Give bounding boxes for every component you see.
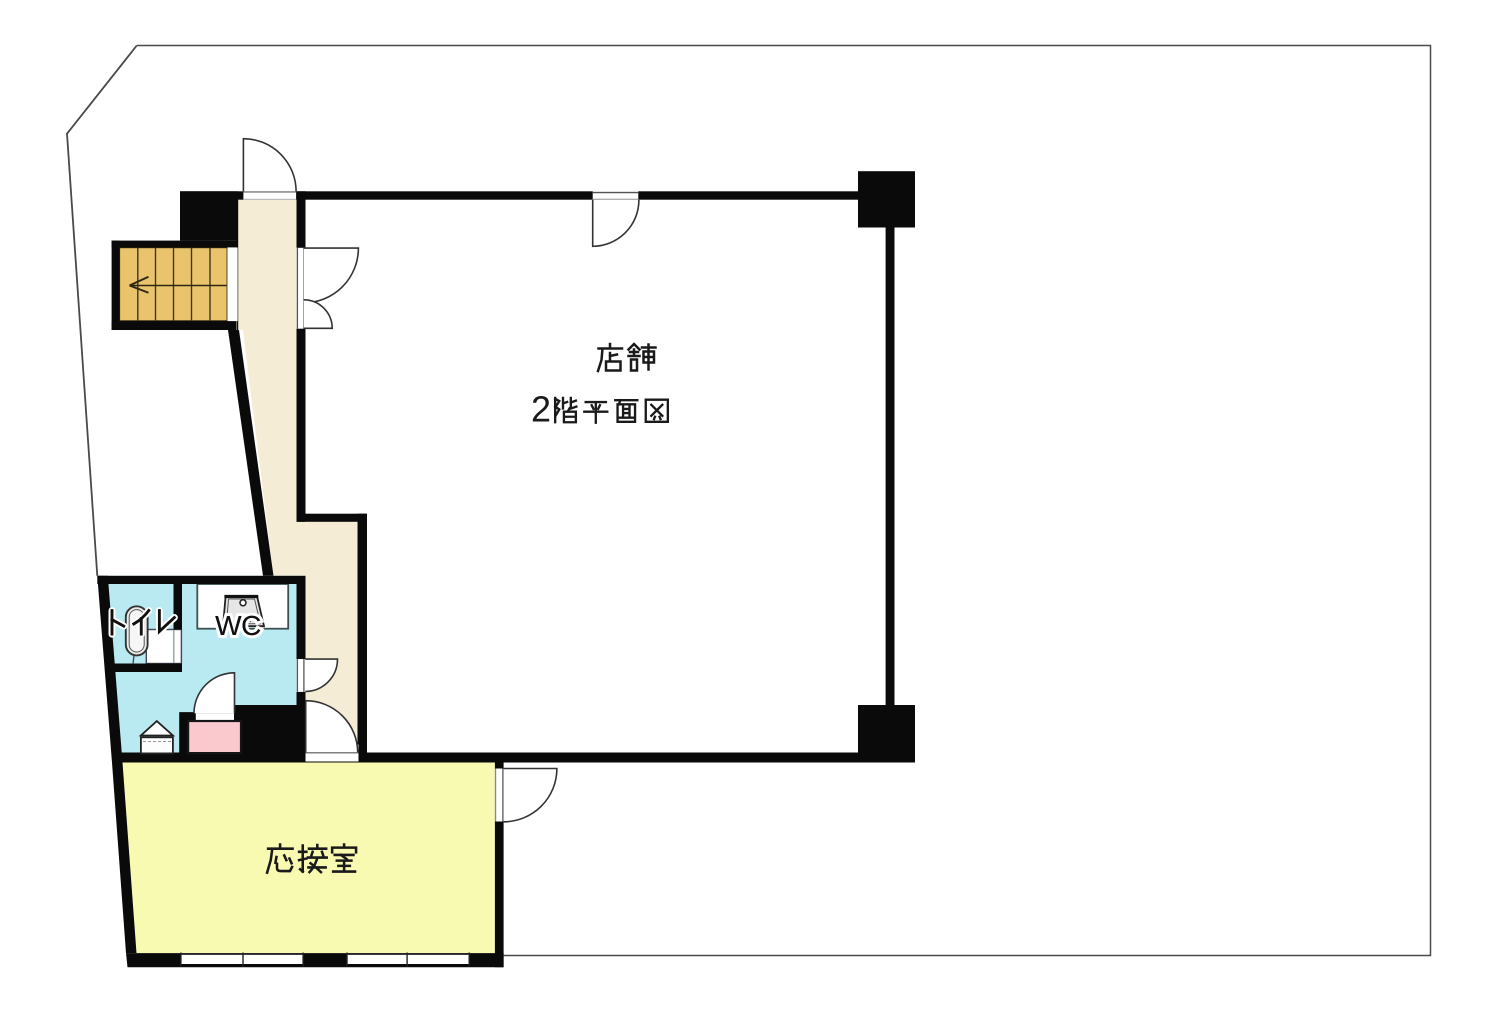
svg-text:2: 2 xyxy=(531,389,551,430)
svg-text:WC: WC xyxy=(215,610,261,641)
